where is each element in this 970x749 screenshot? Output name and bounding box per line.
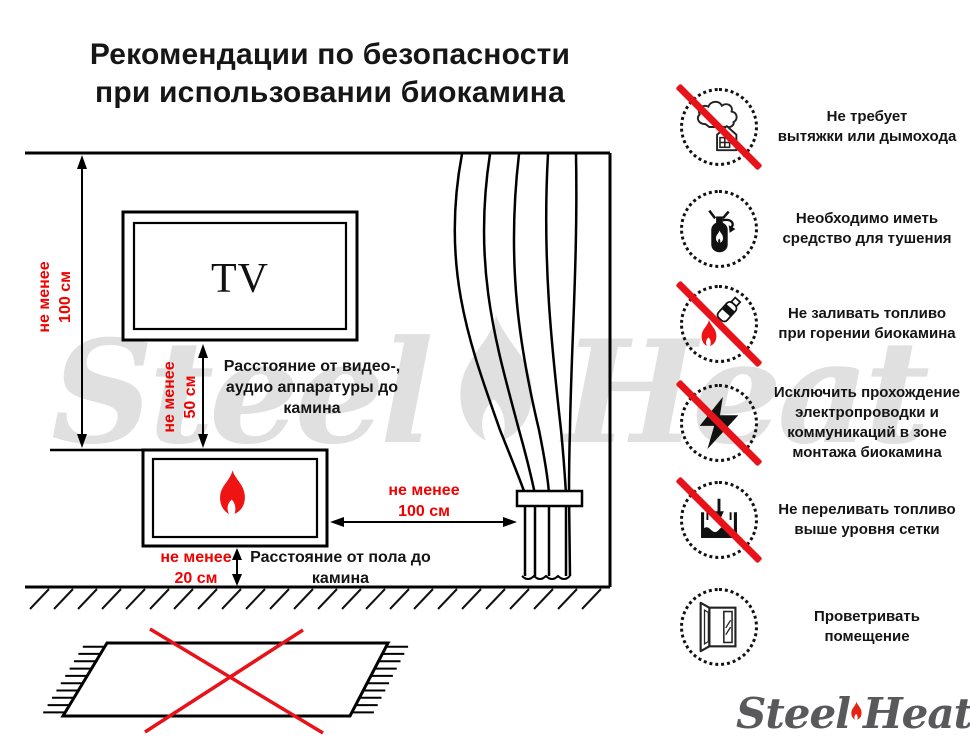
- rule-text: Исключить прохождение электропроводки и …: [768, 383, 966, 462]
- extinguisher-glyph: [690, 200, 748, 258]
- no-overfill-icon: [680, 481, 758, 559]
- rule-row-no-chimney: Не требует вытяжки или дымохода: [658, 81, 966, 173]
- no-wiring-in-mount-zone-icon: [680, 384, 758, 462]
- rule-text: Не переливать топливо выше уровня сетки: [768, 500, 966, 540]
- open-window-glyph: [690, 598, 748, 656]
- rule-row-no-overfill: Не переливать топливо выше уровня сетки: [658, 474, 966, 566]
- dotted-circle: [680, 190, 758, 268]
- floor-gap-dimension-label: не менее 20 см: [146, 548, 246, 590]
- tv-gap-dimension-label: не менее 50 см: [160, 337, 204, 457]
- rule-row-no-refuel: Не заливать топливо при горении биокамин…: [658, 278, 966, 370]
- logo-heat-text: Heat: [863, 689, 970, 738]
- tv-label: TV: [123, 255, 357, 303]
- no-chimney-icon: [680, 88, 758, 166]
- extinguisher-icon: [680, 190, 758, 268]
- floor-gap-note: Расстояние от пола до камина: [248, 548, 433, 590]
- wall-dimension-label: не менее 100 см: [35, 217, 79, 377]
- curtain-gap-dimension-label: не менее 100 см: [344, 481, 504, 523]
- tv-gap-note: Расстояние от видео-, аудио аппаратуры д…: [212, 357, 412, 419]
- rule-row-ventilation: Проветривать помещение: [658, 581, 966, 673]
- rule-text: Не заливать топливо при горении биокамин…: [768, 304, 966, 344]
- rule-row-extinguisher: Необходимо иметь средство для тушения: [658, 183, 966, 275]
- rule-text: Проветривать помещение: [768, 607, 966, 647]
- carpet-crossed-out: [43, 629, 408, 733]
- steelheat-logo: Steel Heat: [736, 682, 970, 744]
- rule-row-no-wiring: Исключить прохождение электропроводки и …: [658, 377, 966, 469]
- floor-hatching: [30, 589, 601, 609]
- rule-text: Не требует вытяжки или дымохода: [768, 107, 966, 147]
- rule-text: Необходимо иметь средство для тушения: [768, 209, 966, 249]
- no-refuel-while-burning-icon: [680, 285, 758, 363]
- logo-steel-text: Steel: [736, 689, 850, 738]
- ventilation-icon: [680, 588, 758, 666]
- curtain-tie-band: [517, 491, 582, 506]
- dotted-circle: [680, 588, 758, 666]
